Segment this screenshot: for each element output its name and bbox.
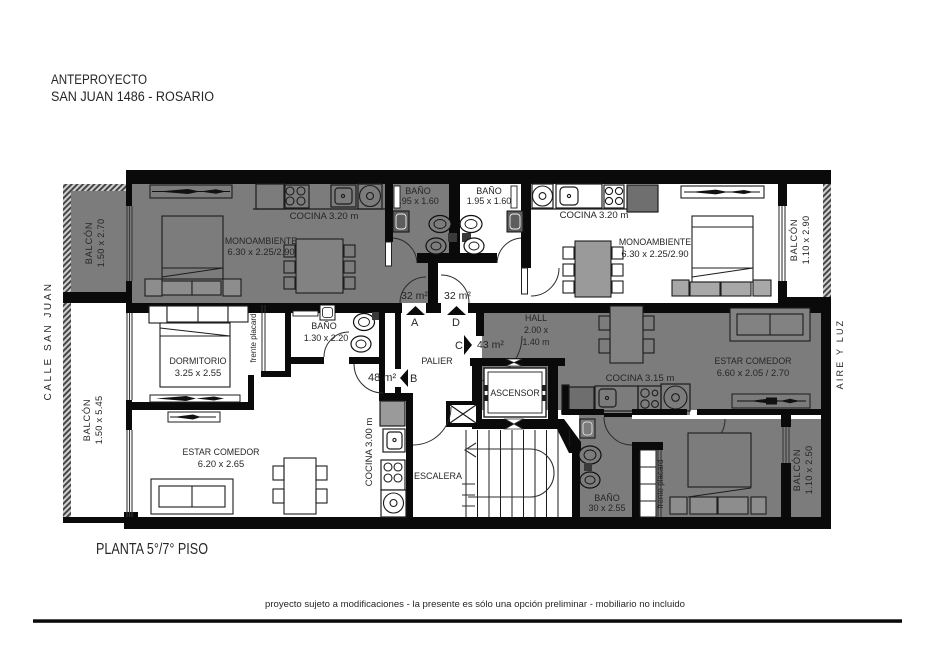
svg-text:32 m²: 32 m² [444, 290, 471, 302]
svg-text:HALL: HALL [525, 313, 547, 323]
svg-text:1.50 x 5.45: 1.50 x 5.45 [94, 396, 104, 445]
svg-text:frente placard: frente placard [249, 314, 258, 363]
svg-text:ANTEPROYECTO: ANTEPROYECTO [51, 72, 147, 87]
svg-text:COCINA 3.00 m: COCINA 3.00 m [364, 418, 375, 487]
svg-text:DORMITORIO: DORMITORIO [169, 356, 226, 366]
svg-text:MONOAMBIENTE: MONOAMBIENTE [619, 237, 691, 247]
svg-text:1.95 x 1.60: 1.95 x 1.60 [467, 196, 512, 206]
svg-text:COCINA 3.20 m: COCINA 3.20 m [290, 211, 359, 222]
svg-text:SAN JUAN 1486 - ROSARIO: SAN JUAN 1486 - ROSARIO [51, 89, 214, 104]
svg-text:3.25 x 2.55: 3.25 x 2.55 [175, 367, 221, 378]
svg-text:1.30 x 2.20: 1.30 x 2.20 [304, 333, 349, 343]
svg-text:COCINA 3.20 m: COCINA 3.20 m [560, 210, 629, 221]
svg-text:BAÑO: BAÑO [405, 186, 431, 196]
svg-text:BALCÓN: BALCÓN [792, 449, 802, 492]
svg-text:frente placard: frente placard [656, 460, 665, 509]
svg-text:PLANTA 5°/7° PISO: PLANTA 5°/7° PISO [96, 541, 208, 558]
svg-text:A: A [411, 317, 419, 329]
svg-text:COCINA 3.15 m: COCINA 3.15 m [606, 373, 675, 384]
svg-text:PALIER: PALIER [421, 356, 453, 366]
svg-text:BALCÓN: BALCÓN [84, 222, 94, 265]
svg-text:30 x 2.55: 30 x 2.55 [588, 503, 625, 513]
svg-text:BAÑO: BAÑO [594, 493, 620, 503]
svg-text:BALCÓN: BALCÓN [789, 219, 799, 262]
svg-text:BALCÓN: BALCÓN [82, 399, 92, 442]
svg-text:D: D [452, 317, 460, 329]
svg-text:2.00 x: 2.00 x [524, 325, 549, 335]
svg-text:ESCALERA: ESCALERA [414, 471, 462, 481]
svg-text:6.20 x 2.65: 6.20 x 2.65 [198, 458, 244, 469]
svg-text:MONOAMBIENTE: MONOAMBIENTE [225, 236, 297, 246]
svg-text:1.40 m: 1.40 m [523, 337, 550, 347]
svg-text:48 m²: 48 m² [368, 372, 396, 384]
svg-text:BAÑO: BAÑO [311, 321, 337, 331]
svg-text:6.60 x 2.05 / 2.70: 6.60 x 2.05 / 2.70 [717, 367, 789, 378]
svg-text:1.50 x 2.70: 1.50 x 2.70 [96, 219, 106, 268]
svg-text:AIRE Y LUZ: AIRE Y LUZ [835, 319, 845, 390]
svg-text:ASCENSOR: ASCENSOR [490, 388, 539, 398]
svg-text:1.10 x 2.50: 1.10 x 2.50 [804, 446, 814, 495]
svg-text:ESTAR COMEDOR: ESTAR COMEDOR [714, 356, 791, 366]
svg-text:C: C [455, 340, 463, 352]
svg-text:B: B [410, 373, 417, 385]
svg-text:proyecto sujeto a modificacion: proyecto sujeto a modificaciones - la pr… [265, 599, 685, 610]
svg-text:6.30 x 2.25/2.90: 6.30 x 2.25/2.90 [227, 246, 294, 257]
svg-text:BAÑO: BAÑO [476, 186, 502, 196]
svg-text:6.30 x 2.25/2.90: 6.30 x 2.25/2.90 [621, 248, 688, 259]
svg-text:CALLE SAN JUAN: CALLE SAN JUAN [43, 282, 54, 401]
svg-text:.95 x 1.60: .95 x 1.60 [399, 196, 439, 206]
svg-text:1.10 x 2.90: 1.10 x 2.90 [801, 216, 811, 265]
svg-text:ESTAR COMEDOR: ESTAR COMEDOR [182, 447, 259, 457]
svg-text:43 m²: 43 m² [477, 339, 504, 351]
svg-text:32 m²: 32 m² [401, 290, 428, 302]
